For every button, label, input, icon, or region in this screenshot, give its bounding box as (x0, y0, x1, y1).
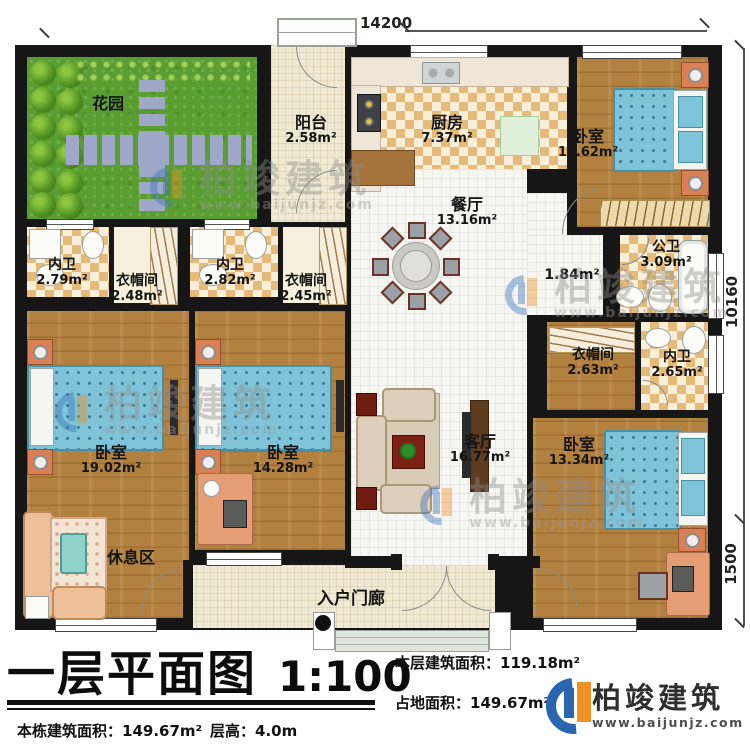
kitchen-sink-icon (422, 62, 460, 84)
sink-icon (616, 286, 644, 308)
stepping-stone-center (139, 135, 165, 165)
room-area: 13.34m² (549, 454, 609, 469)
window-public-bath (708, 253, 724, 319)
floor-height-value: 4.0m (255, 722, 297, 740)
room-area: 14.28m² (253, 462, 313, 477)
room-name: 阳台 (285, 114, 336, 132)
room-name: 衣帽间 (567, 348, 618, 364)
room-name: 内卫 (204, 258, 255, 274)
label-bath-2: 内卫2.82m² (204, 258, 255, 288)
label-kitchen: 厨房7.37m² (421, 114, 472, 146)
label-rest-area: 休息区 (107, 549, 155, 567)
balcony-railing (277, 18, 357, 47)
dining-extension (527, 193, 567, 235)
room-area: 10.62m² (558, 146, 618, 161)
room-area: 2.65m² (651, 366, 702, 381)
entrance-steps (335, 630, 489, 652)
sofa-icon (380, 484, 432, 514)
dimension-right-upper: 10160 (723, 272, 739, 332)
bed-icon (604, 430, 682, 530)
total-area-value: 149.67m² (122, 722, 202, 740)
room-name: 衣帽间 (280, 274, 331, 290)
room-name: 卧室 (253, 444, 313, 462)
room-area: 3.09m² (640, 256, 691, 271)
label-living: 客厅16.77m² (450, 433, 510, 465)
label-garden: 花园 (92, 95, 124, 113)
tv-icon (170, 380, 178, 435)
dimension-right-lower: 1500 (722, 539, 738, 589)
nightstand-icon (27, 449, 53, 475)
chair-icon (372, 258, 389, 276)
window-bedroom-tr (582, 45, 682, 59)
wardrobe-icon (600, 200, 710, 227)
pillow (681, 480, 705, 516)
room-name: 餐厅 (437, 196, 497, 214)
shrub-icon (30, 141, 56, 167)
room-area: 13.16m² (437, 214, 497, 229)
label-closet-2: 衣帽间2.45m² (280, 274, 331, 304)
land-area-value: 149.67m² (470, 694, 550, 712)
label-closet-1: 衣帽间2.48m² (111, 274, 162, 304)
room-name: 内卫 (36, 258, 87, 274)
room-name: 卧室 (81, 444, 141, 462)
sofa-icon (356, 415, 387, 491)
sink-icon (645, 328, 671, 348)
toilet-icon (82, 231, 104, 259)
label-balcony: 阳台2.58m² (285, 114, 336, 146)
label-hall: 1.84m² (544, 268, 599, 284)
label-bedroom-left: 卧室19.02m² (81, 444, 141, 476)
label-bath-3: 内卫2.65m² (651, 350, 702, 380)
room-name: 休息区 (107, 549, 155, 567)
nightstand-icon (678, 528, 706, 552)
coffee-table-icon (60, 533, 87, 574)
company-name: 柏竣建筑 (592, 684, 724, 713)
shower-icon (29, 229, 61, 259)
pillow (678, 96, 703, 128)
room-area: 2.79m² (36, 274, 87, 289)
room-name: 公卫 (640, 240, 691, 256)
page-title: 一层平面图 (7, 650, 257, 698)
shrub-icon (30, 192, 56, 218)
room-name: 入户门廊 (317, 590, 385, 609)
shower-icon (192, 229, 224, 259)
plan-scale: 1:100 (278, 656, 412, 698)
dimension-tick (734, 40, 745, 51)
label-bedroom-tr: 卧室10.62m² (558, 128, 618, 160)
floor-area-value: 119.18m² (500, 654, 580, 672)
room-name: 内卫 (651, 350, 702, 366)
room-area: 16.77m² (450, 451, 510, 466)
lamp-icon (203, 480, 220, 497)
side-table-icon (356, 393, 377, 416)
dining-table-icon (392, 242, 440, 290)
total-area-line: 本栋建筑面积：149.67m² (17, 720, 202, 741)
bed-icon (613, 88, 677, 172)
window-bedroom-right (543, 618, 637, 632)
label-bedroom-right: 卧室13.34m² (549, 436, 609, 468)
room-name: 客厅 (450, 433, 510, 451)
room-area: 7.37m² (421, 132, 472, 147)
label-bath-1: 内卫2.79m² (36, 258, 87, 288)
room-name: 花园 (92, 95, 124, 113)
window-bedroom-left (55, 618, 157, 632)
shrub-icon (30, 168, 56, 194)
toilet-icon (245, 231, 267, 259)
plant-icon (400, 443, 416, 459)
shrub-icon (57, 193, 83, 219)
nightstand-icon (195, 449, 221, 475)
room-name: 衣帽间 (111, 274, 162, 290)
label-dining: 餐厅13.16m² (437, 196, 497, 228)
label-porch: 入户门廊 (317, 590, 385, 609)
total-area-label: 本栋建筑面积： (17, 722, 122, 740)
floor-area-label: 本层建筑面积： (395, 654, 500, 672)
company-url: www.baijunjz.com (592, 715, 744, 730)
pillow (678, 131, 703, 163)
kitchen-island (500, 116, 539, 156)
porch-column-dot (315, 615, 331, 631)
room-name: 厨房 (421, 114, 472, 132)
room-area: 2.82m² (204, 274, 255, 289)
side-table-icon (25, 596, 49, 619)
room-area: 2.48m² (111, 290, 162, 305)
floor-height-label: 层高： (210, 722, 255, 740)
window-bedroom-mid (206, 552, 282, 566)
nightstand-icon (681, 62, 709, 88)
pillow (30, 368, 54, 446)
monitor-icon (223, 500, 247, 528)
room-name: 卧室 (549, 436, 609, 454)
sofa-icon (52, 586, 107, 620)
monitor-icon (672, 566, 694, 592)
dimension-line-right (743, 48, 745, 626)
room-area: 19.02m² (81, 462, 141, 477)
tv-icon (336, 380, 344, 432)
title-underline-thin (7, 708, 375, 710)
room-area: 2.45m² (280, 290, 331, 305)
label-public-bath: 公卫3.09m² (640, 240, 691, 270)
nightstand-icon (27, 339, 53, 365)
floor-area-line: 本层建筑面积：119.18m² (395, 652, 580, 673)
chair-icon (638, 572, 668, 600)
kitchen-bar-counter (351, 150, 415, 186)
side-table-icon (356, 487, 377, 510)
wall-stub (183, 560, 193, 630)
land-area-line: 占地面积：149.67m² (395, 692, 550, 713)
room-area: 2.63m² (567, 364, 618, 379)
room-area: 1.84m² (544, 268, 599, 284)
shrub-icon (57, 89, 83, 115)
nightstand-icon (195, 339, 221, 365)
dimension-tick (39, 28, 50, 39)
shrub-icon (30, 87, 56, 113)
nightstand-icon (681, 170, 709, 196)
chair-icon (443, 258, 460, 276)
pillow (681, 438, 705, 474)
pillow (198, 368, 222, 446)
label-bedroom-mid: 卧室14.28m² (253, 444, 313, 476)
window-bath-3 (708, 335, 724, 394)
land-area-label: 占地面积： (395, 694, 470, 712)
floor-plan-page: 花园 阳台2.58m² 厨房7.37m² 卧室10.62m² 餐厅13.16m²… (0, 0, 750, 744)
title-underline-thick (7, 700, 375, 705)
toilet-icon (648, 284, 672, 312)
shrub-icon (30, 114, 56, 140)
kitchen-counter-top (351, 57, 569, 87)
floor-height-line: 层高：4.0m (210, 720, 297, 741)
dimension-line-top (405, 30, 707, 32)
room-area: 2.58m² (285, 132, 336, 147)
sofa-icon (382, 388, 436, 422)
room-name: 卧室 (558, 128, 618, 146)
label-closet-3: 衣帽间2.63m² (567, 348, 618, 378)
wall-pillar (391, 554, 402, 570)
chair-icon (408, 222, 426, 239)
porch-column (489, 612, 511, 650)
shrub-icon (30, 60, 56, 86)
dimension-tick (699, 18, 710, 29)
stove-icon (357, 94, 381, 132)
chair-icon (408, 293, 426, 310)
